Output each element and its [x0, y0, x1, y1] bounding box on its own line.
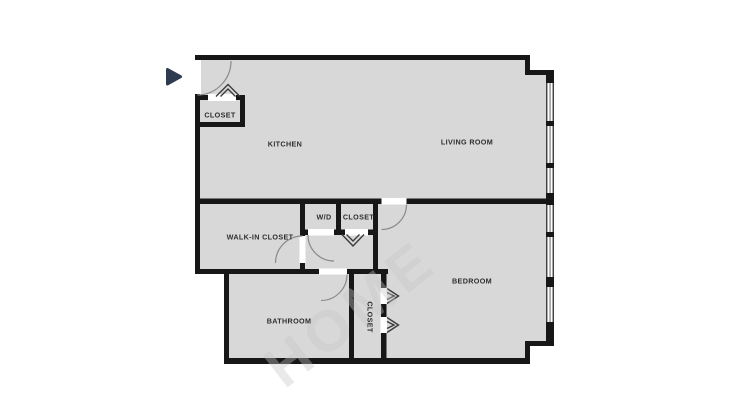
room-label-entry-closet: CLOSET [204, 110, 235, 119]
room-label-wd: W/D [316, 213, 331, 222]
room-label-walk-in-closet: WALK-IN CLOSET [227, 233, 294, 242]
room-label-bathroom: BATHROOM [267, 317, 312, 326]
room-label-hall-closet: CLOSET [343, 213, 374, 222]
room-label-bedroom: BEDROOM [452, 277, 492, 286]
floorplan-drawing [0, 0, 736, 414]
floorplan-canvas: HOME CLOSET KITCHEN LIVING ROOM W/D CLOS… [0, 0, 736, 414]
entry-arrow-icon [168, 70, 181, 85]
room-label-living-room: LIVING ROOM [441, 138, 493, 147]
room-label-bedroom-closet: CLOSET [365, 301, 374, 332]
room-label-kitchen: KITCHEN [268, 140, 302, 149]
